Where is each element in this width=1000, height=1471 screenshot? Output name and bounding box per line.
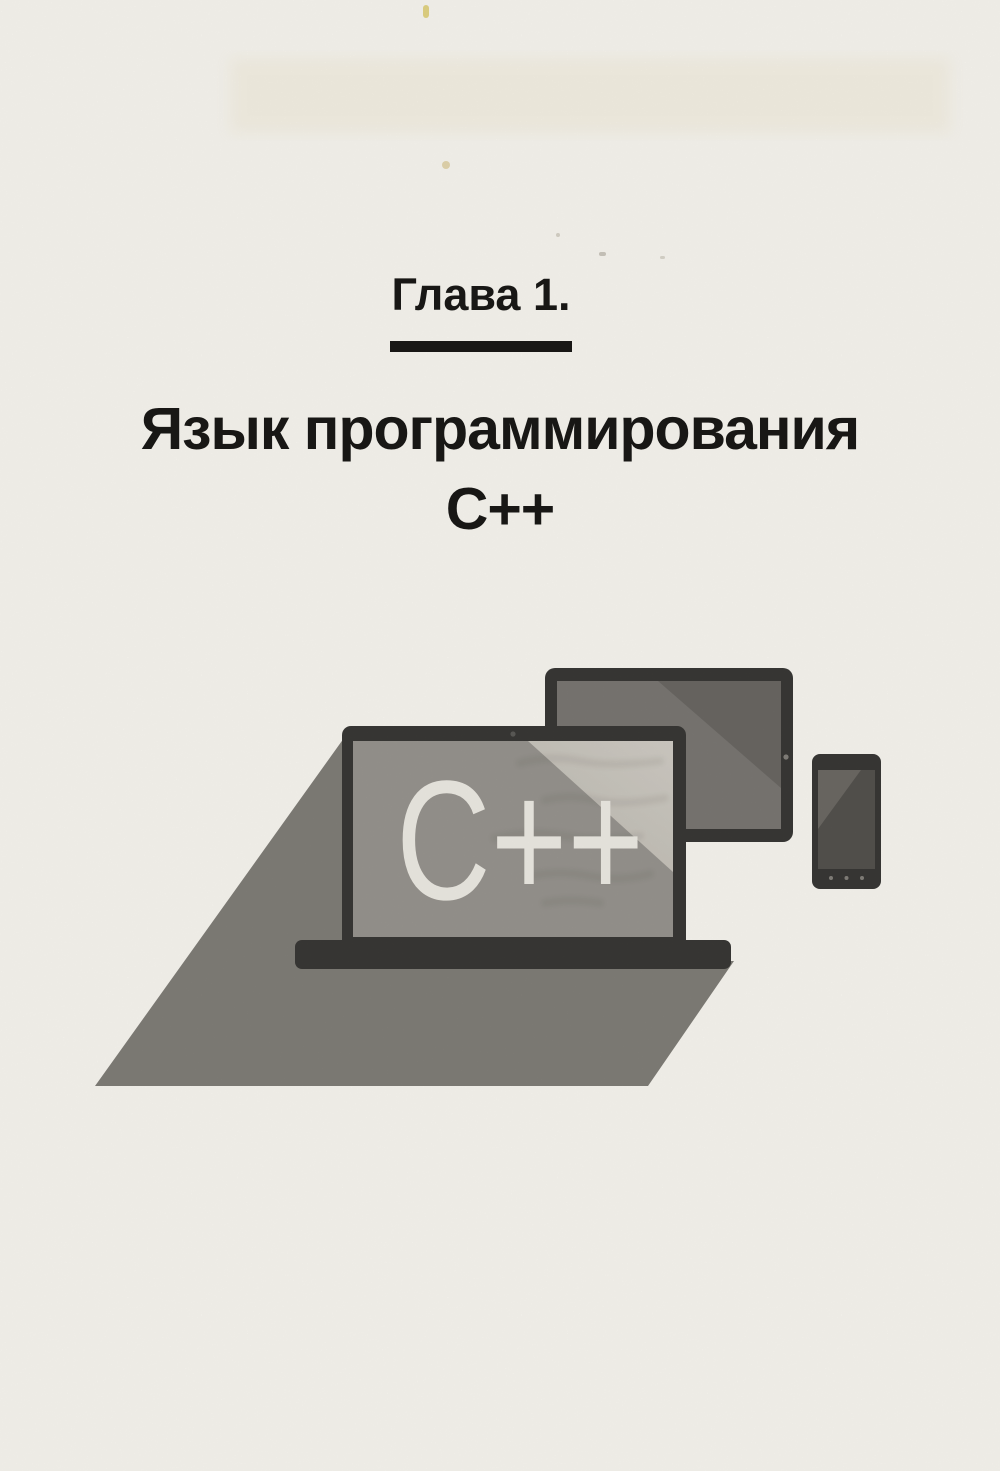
scan-grain-overlay — [0, 0, 1000, 1471]
devices-illustration: C++ — [0, 0, 1000, 1471]
book-page: Глава 1. Язык программирования C++ — [0, 0, 1000, 1471]
